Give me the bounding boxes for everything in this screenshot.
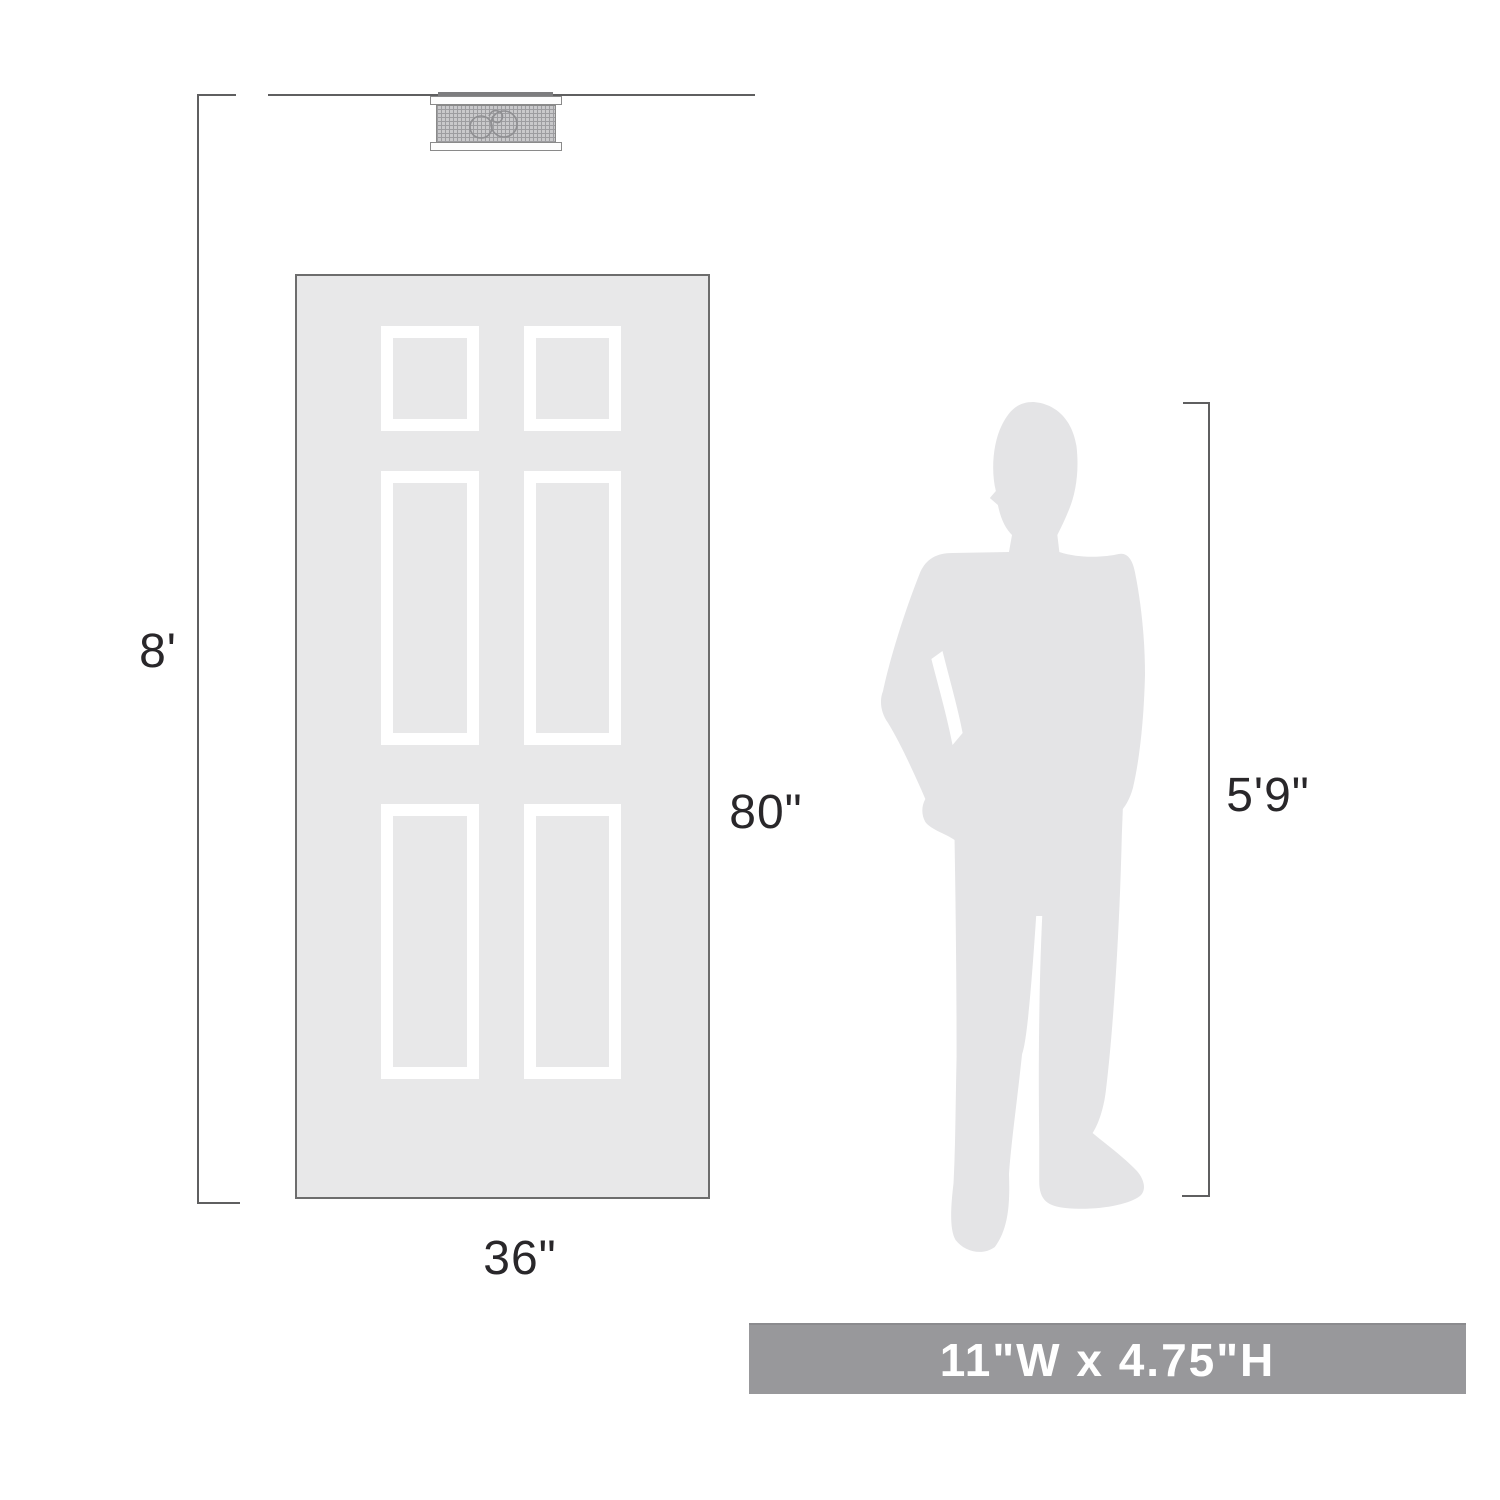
person-dimension-top-tick <box>1183 402 1210 404</box>
door-panel <box>381 471 479 745</box>
ceiling-dimension-top-tick <box>197 94 236 96</box>
size-banner-label: 11"W x 4.75"H <box>940 1333 1276 1387</box>
light-bottom-cap <box>430 142 562 151</box>
person-dimension-bottom-tick <box>1182 1195 1210 1197</box>
ceiling-dimension-bottom-tick <box>197 1202 240 1204</box>
light-scroll-ornament-icon <box>451 106 541 142</box>
door-figure <box>295 274 710 1199</box>
product-scale-diagram: 8' 80" 36" 5'9" 11"W x 4.75"H <box>0 0 1500 1500</box>
ceiling-height-label: 8' <box>108 626 208 678</box>
door-width-label: 36" <box>470 1233 570 1285</box>
door-panel <box>524 471 621 745</box>
size-banner: 11"W x 4.75"H <box>749 1323 1466 1394</box>
person-silhouette <box>880 402 1145 1252</box>
person-height-label: 5'9" <box>1193 770 1343 822</box>
door-panel <box>381 326 479 431</box>
light-top-cap <box>430 96 562 105</box>
door-height-label: 80" <box>716 787 816 839</box>
door-panel <box>524 326 621 431</box>
door-panel <box>524 804 621 1079</box>
door-panel <box>381 804 479 1079</box>
light-mesh-body <box>436 105 556 143</box>
